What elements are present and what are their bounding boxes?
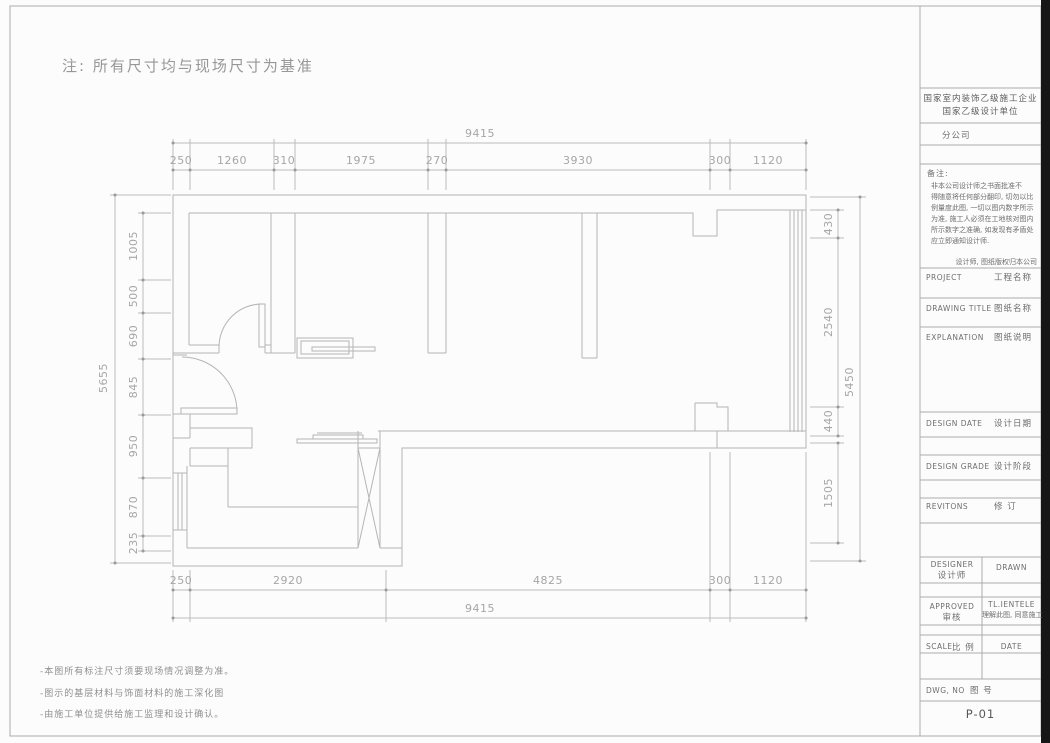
partition-stubs: [428, 213, 597, 358]
sheet-edge-band: [1041, 0, 1050, 743]
clientele-line1: TL.IENTELE: [984, 600, 1039, 609]
dwg-no-label-en: DWG, NO: [926, 686, 965, 695]
dim-bottom-seg-3: 300: [695, 574, 745, 588]
top-wall-inner: [189, 210, 806, 236]
designer-label-cn: 设计师: [922, 569, 982, 581]
door-entry: [181, 357, 237, 414]
dim-top-seg-1: 1260: [207, 154, 257, 168]
left-window: [173, 473, 187, 530]
dim-top-overall: 9415: [455, 127, 505, 141]
remarks-line-1: 非本公司设计师之书面批准不: [931, 181, 1022, 191]
dim-bottom-seg-1: 2920: [263, 574, 313, 588]
dim-left-seg-2: 690: [127, 311, 141, 361]
dim-left-seg-4: 950: [127, 421, 141, 471]
dim-top-seg-4: 270: [412, 154, 462, 168]
footer-note-3: -由施工单位提供给施工监理和设计确认。: [40, 707, 224, 720]
kitchen-fixtures: [173, 414, 402, 548]
dim-top-seg-2: 310: [259, 154, 309, 168]
floor-plan: [173, 195, 806, 566]
drawing-sheet: 注: 所有尺寸均与现场尺寸为基准 9415 250 1260 310 1975 …: [0, 0, 1050, 743]
remarks-line-4: 为准, 施工人必须在工地核对图内: [931, 214, 1033, 224]
remarks-line-2: 得随意将任何部分翻印, 切勿以比: [931, 192, 1033, 202]
dim-top-seg-6: 300: [695, 154, 745, 168]
dim-right-seg-2: 440: [822, 396, 836, 446]
dim-right-seg-0: 430: [822, 199, 836, 249]
dim-bottom-seg-2: 4825: [523, 574, 573, 588]
design-grade-label-cn: 设计阶段: [994, 460, 1032, 472]
sheet-frame: [10, 6, 1041, 736]
drawing-title-label-en: DRAWING TITLE: [926, 304, 992, 313]
bottom-wall-band-and-pier: [378, 403, 806, 448]
dim-right-seg-1: 2540: [822, 297, 836, 347]
drawn-label: DRAWN: [984, 563, 1039, 572]
design-date-label-en: DESIGN DATE: [926, 419, 982, 428]
drawing-title-label-cn: 图纸名称: [994, 302, 1032, 314]
exterior-walls: [173, 195, 806, 566]
footer-note-1: -本图所有标注尺寸须要现场情况调整为准。: [40, 664, 234, 677]
sheet-border: [10, 6, 1041, 736]
revisions-label-cn: 修 订: [994, 500, 1017, 512]
remarks-line-3: 例量度此图, 一切以图内数字所示: [931, 203, 1033, 213]
approved-label-cn: 审核: [922, 611, 982, 623]
right-window-glazing: [790, 210, 802, 432]
explanation-label-en: EXPLANATION: [926, 333, 984, 342]
project-label-cn: 工程名称: [994, 271, 1032, 283]
designer-label-en: DESIGNER: [922, 560, 982, 569]
clientele-line2: 理解此图, 同意施工: [982, 610, 1041, 620]
dim-right-seg-3: 1505: [822, 468, 836, 518]
dim-left-seg-0: 1005: [127, 221, 141, 271]
branch-label: 分公司: [942, 129, 971, 141]
footer-note-2: -图示的基层材料与饰面材料的施工深化图: [40, 686, 224, 699]
scale-label-cn: 比 例: [952, 641, 975, 653]
remarks-label: 备注:: [927, 168, 949, 179]
remarks-line-5: 所示数字之准确, 如发现有矛盾处: [931, 225, 1033, 235]
company-name-line2: 国家乙级设计单位: [922, 105, 1039, 117]
dim-bottom-seg-4: 1120: [743, 574, 793, 588]
room1-walls: [173, 213, 295, 355]
dim-top-seg-7: 1120: [743, 154, 793, 168]
door-room1: [219, 304, 265, 347]
dwg-no-label-cn: 图 号: [970, 684, 993, 696]
project-label-en: PROJECT: [926, 273, 962, 282]
shaft-x-box: [358, 431, 380, 548]
dimension-lines: [110, 139, 866, 622]
dim-left-overall: 5655: [97, 353, 111, 403]
room2-shelf: [297, 338, 375, 358]
dim-bottom-seg-0: 250: [156, 574, 206, 588]
dim-left-seg-6: 235: [127, 518, 141, 568]
dim-top-seg-0: 250: [156, 154, 206, 168]
approved-label-en: APPROVED: [922, 602, 982, 611]
revisions-label-en: REVITONS: [926, 502, 968, 511]
sheet-number: P-01: [922, 707, 1039, 721]
design-date-label-cn: 设计日期: [994, 417, 1032, 429]
dim-bottom-overall: 9415: [455, 602, 505, 616]
explanation-label-cn: 图纸说明: [994, 331, 1032, 343]
linework-canvas: [0, 0, 1050, 743]
dim-left-seg-3: 845: [127, 362, 141, 412]
copyright-note: 设计师, 图纸版权归本公司: [922, 257, 1037, 267]
dim-right-overall: 5450: [843, 357, 857, 407]
general-note: 注: 所有尺寸均与现场尺寸为基准: [62, 55, 314, 76]
company-name-line1: 国家室内装饰乙级施工企业: [922, 92, 1039, 104]
dim-top-seg-5: 3930: [553, 154, 603, 168]
date-label: DATE: [984, 642, 1039, 651]
dim-top-seg-3: 1975: [336, 154, 386, 168]
dim-extension-lines: [110, 139, 866, 622]
scale-label-en: SCALE: [926, 642, 953, 651]
remarks-line-6: 应立即通知设计师.: [931, 236, 989, 246]
design-grade-label-en: DESIGN GRADE: [926, 462, 990, 471]
